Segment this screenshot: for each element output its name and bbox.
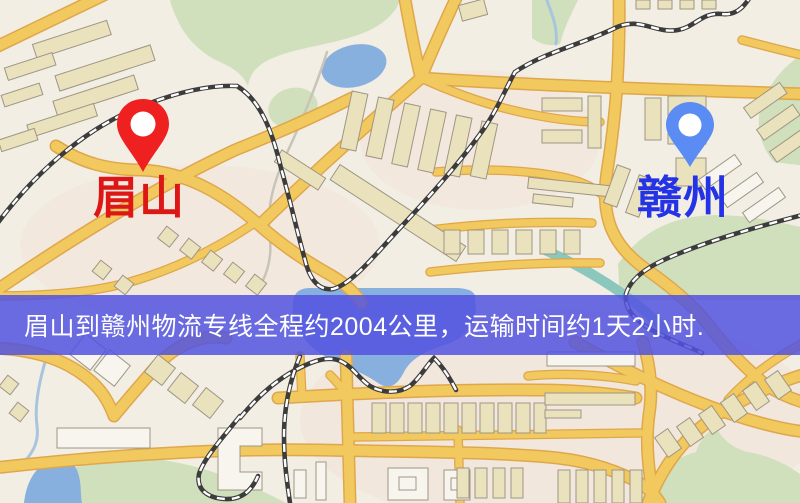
route-info-banner: 眉山到赣州物流专线全程约2004公里，运输时间约1天2小时. — [0, 295, 800, 355]
origin-pin-icon[interactable] — [117, 99, 169, 172]
destination-pin-icon[interactable] — [666, 102, 714, 167]
origin-city-label: 眉山 — [93, 176, 185, 221]
map-view[interactable]: 眉山 赣州 眉山到赣州物流专线全程约2004公里，运输时间约1天2小时. — [0, 0, 800, 503]
map-canvas[interactable] — [0, 0, 800, 503]
destination-city-label: 赣州 — [637, 176, 729, 221]
route-info-text: 眉山到赣州物流专线全程约2004公里，运输时间约1天2小时. — [24, 307, 704, 343]
